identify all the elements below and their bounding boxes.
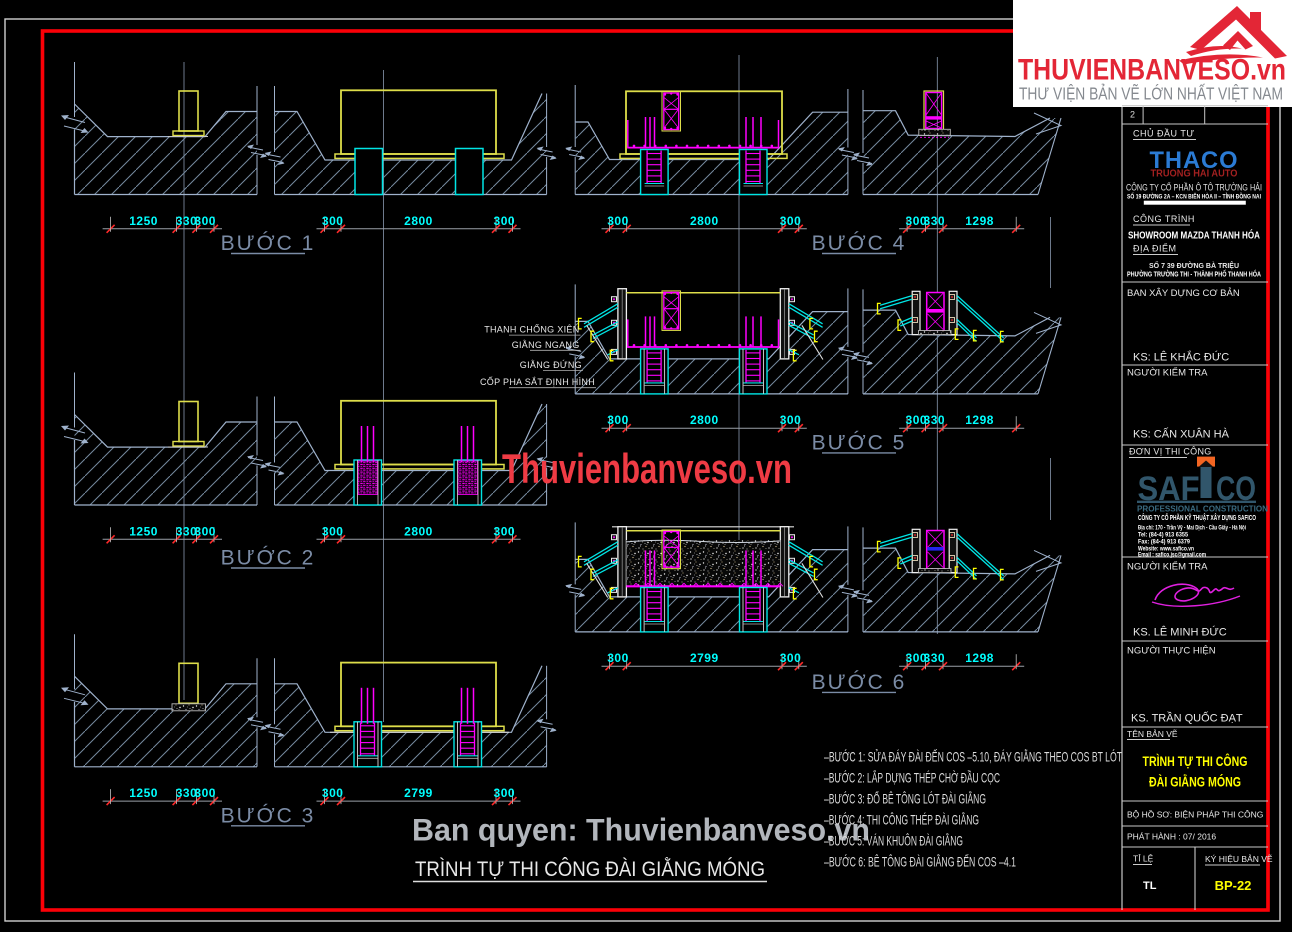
svg-text:ĐỊA ĐIỂM: ĐỊA ĐIỂM — [1133, 243, 1177, 254]
svg-text:TÊN BẢN VẼ: TÊN BẢN VẼ — [1127, 728, 1178, 739]
svg-text:Fax: (84-4) 913 6379: Fax: (84-4) 913 6379 — [1138, 539, 1190, 546]
svg-text:1250: 1250 — [129, 524, 158, 538]
svg-text:BP-22: BP-22 — [1215, 878, 1252, 893]
svg-text:GIẰNG NGANG: GIẰNG NGANG — [512, 340, 580, 350]
svg-text:CÔNG TRÌNH: CÔNG TRÌNH — [1133, 214, 1195, 224]
svg-text:1298: 1298 — [965, 214, 994, 228]
svg-text:NGƯỜI KIỂM TRA: NGƯỜI KIỂM TRA — [1127, 367, 1208, 379]
svg-text:–BƯỚC 1: SỬA ĐÁY ĐÀI ĐẾN COS –: –BƯỚC 1: SỬA ĐÁY ĐÀI ĐẾN COS –5.10, ĐÁY … — [824, 748, 1122, 765]
svg-text:2800: 2800 — [690, 214, 719, 228]
svg-text:BƯỚC 5: BƯỚC 5 — [812, 431, 907, 454]
svg-text:SHOWROOM MAZDA THANH HÓA: SHOWROOM MAZDA THANH HÓA — [1128, 229, 1260, 242]
svg-text:2800: 2800 — [404, 214, 433, 228]
svg-text:NGƯỜI THỰC HIỆN: NGƯỜI THỰC HIỆN — [1127, 646, 1216, 657]
svg-text:SỐ 7 39 ĐƯỜNG BÀ TRIỆU: SỐ 7 39 ĐƯỜNG BÀ TRIỆU — [1149, 260, 1239, 270]
svg-text:2: 2 — [1130, 110, 1135, 120]
svg-text:GIẰNG ĐỨNG: GIẰNG ĐỨNG — [520, 360, 582, 370]
svg-text:300: 300 — [194, 214, 216, 228]
svg-text:300: 300 — [780, 413, 802, 427]
svg-text:300: 300 — [607, 413, 629, 427]
svg-text:THANH CHỐNG XIÊN: THANH CHỐNG XIÊN — [484, 324, 579, 335]
svg-text:Thuvienbanveso.vn: Thuvienbanveso.vn — [502, 445, 792, 492]
svg-text:THƯ VIỆN BẢN VẼ LỚN NHẤT VIỆT: THƯ VIỆN BẢN VẼ LỚN NHẤT VIỆT NAM — [1019, 83, 1283, 104]
svg-text:BƯỚC 4: BƯỚC 4 — [812, 232, 907, 255]
svg-text:2799: 2799 — [690, 651, 719, 665]
svg-text:1298: 1298 — [965, 651, 994, 665]
svg-text:300: 300 — [607, 214, 629, 228]
svg-text:300: 300 — [780, 214, 802, 228]
svg-text:PHÁT HÀNH : 07/ 2016: PHÁT HÀNH : 07/ 2016 — [1127, 832, 1216, 842]
svg-text:PHƯỜNG TRƯỜNG THI - THÀNH PHỐ: PHƯỜNG TRƯỜNG THI - THÀNH PHỐ THANH HÓA — [1127, 269, 1261, 279]
svg-text:300: 300 — [194, 524, 216, 538]
svg-text:BAN XÂY DỰNG CƠ BẢN: BAN XÂY DỰNG CƠ BẢN — [1127, 287, 1240, 299]
svg-text:TRUONG HAI AUTO: TRUONG HAI AUTO — [1151, 168, 1238, 180]
svg-text:PROFESSIONAL CONSTRUCTION: PROFESSIONAL CONSTRUCTION — [1137, 504, 1268, 514]
svg-text:CÔNG TY CỔ PHẦN Ô TÔ TRƯỜNG HẢ: CÔNG TY CỔ PHẦN Ô TÔ TRƯỜNG HẢI — [1126, 182, 1262, 194]
svg-text:BƯỚC 6: BƯỚC 6 — [812, 671, 907, 694]
svg-text:1250: 1250 — [129, 786, 158, 800]
svg-text:Tel: (84-4) 913 6355: Tel: (84-4) 913 6355 — [1138, 532, 1188, 539]
svg-text:KS: LÊ KHẮC ĐỨC: KS: LÊ KHẮC ĐỨC — [1133, 351, 1229, 364]
svg-text:300: 300 — [322, 786, 344, 800]
svg-text:2800: 2800 — [404, 524, 433, 538]
svg-text:ĐÀI GIẰNG MÓNG: ĐÀI GIẰNG MÓNG — [1149, 775, 1241, 790]
svg-text:TRÌNH TỰ THI CÔNG: TRÌNH TỰ THI CÔNG — [1143, 754, 1248, 769]
svg-text:–BƯỚC 5: VÁN KHUÔN ĐÀI GIẰNG: –BƯỚC 5: VÁN KHUÔN ĐÀI GIẰNG — [824, 832, 963, 849]
svg-text:300: 300 — [780, 651, 802, 665]
svg-text:KS: CẤN XUÂN HÀ: KS: CẤN XUÂN HÀ — [1133, 428, 1230, 441]
svg-text:TL: TL — [1143, 880, 1157, 892]
svg-text:–BƯỚC 4: THI CÔNG THÉP ĐÀI GIẰ: –BƯỚC 4: THI CÔNG THÉP ĐÀI GIẰNG — [824, 811, 979, 828]
svg-text:300: 300 — [494, 214, 516, 228]
svg-text:300: 300 — [494, 786, 516, 800]
svg-text:THUVIENBANVESO.vn: THUVIENBANVESO.vn — [1018, 54, 1286, 87]
svg-text:1250: 1250 — [129, 214, 158, 228]
svg-text:Địa chỉ: 170 - Trần Vỹ - Mai D: Địa chỉ: 170 - Trần Vỹ - Mai Dịch - Cầu … — [1138, 523, 1246, 532]
svg-text:BỘ HỒ SƠ: BIỆN PHÁP THI CÔNG: BỘ HỒ SƠ: BIỆN PHÁP THI CÔNG — [1127, 809, 1263, 820]
svg-text:KS. TRẦN QUỐC ĐẠT: KS. TRẦN QUỐC ĐẠT — [1131, 711, 1243, 725]
svg-text:300: 300 — [322, 214, 344, 228]
svg-text:ĐƠN VỊ THI CÔNG: ĐƠN VỊ THI CÔNG — [1129, 447, 1212, 457]
svg-text:Ban quyen: Thuvienbanveso.vn: Ban quyen: Thuvienbanveso.vn — [412, 812, 870, 848]
svg-text:CỐP PHA SẮT ĐỊNH HÌNH: CỐP PHA SẮT ĐỊNH HÌNH — [480, 376, 595, 387]
svg-text:300: 300 — [607, 651, 629, 665]
svg-text:BƯỚC 3: BƯỚC 3 — [221, 804, 316, 827]
svg-text:1298: 1298 — [965, 413, 994, 427]
svg-text:2799: 2799 — [404, 786, 433, 800]
svg-text:330: 330 — [924, 651, 946, 665]
svg-text:KS. LÊ MINH ĐỨC: KS. LÊ MINH ĐỨC — [1133, 626, 1227, 639]
svg-text:–BƯỚC 3: ĐỔ BÊ TÔNG LÓT ĐÀI GI: –BƯỚC 3: ĐỔ BÊ TÔNG LÓT ĐÀI GIẰNG — [824, 790, 986, 807]
svg-text:2800: 2800 — [690, 413, 719, 427]
svg-text:BƯỚC 2: BƯỚC 2 — [221, 547, 316, 570]
svg-text:330: 330 — [924, 214, 946, 228]
svg-text:330: 330 — [924, 413, 946, 427]
svg-text:Email : safico.jsc@gmail.com: Email : safico.jsc@gmail.com — [1138, 552, 1206, 559]
svg-text:KÝ HIỆU BẢN VẼ: KÝ HIỆU BẢN VẼ — [1205, 853, 1273, 864]
svg-text:–BƯỚC 2: LẮP DỰNG THÉP CHỜ ĐẦU: –BƯỚC 2: LẮP DỰNG THÉP CHỜ ĐẦU CỌC — [824, 769, 1000, 786]
svg-text:TỈ LỆ: TỈ LỆ — [1133, 853, 1154, 864]
svg-text:300: 300 — [194, 786, 216, 800]
svg-text:300: 300 — [494, 524, 516, 538]
svg-text:BƯỚC 1: BƯỚC 1 — [221, 232, 316, 255]
svg-text:CHỦ ĐẦU TƯ: CHỦ ĐẦU TƯ — [1133, 128, 1195, 139]
svg-text:300: 300 — [322, 524, 344, 538]
svg-text:TRÌNH TỰ THI CÔNG ĐÀI GIẰNG MÓ: TRÌNH TỰ THI CÔNG ĐÀI GIẰNG MÓNG — [415, 857, 765, 881]
svg-text:NGƯỜI KIỂM TRA: NGƯỜI KIỂM TRA — [1127, 561, 1208, 573]
svg-text:–BƯỚC 6: BÊ TÔNG ĐÀI GIẰNG ĐẾN: –BƯỚC 6: BÊ TÔNG ĐÀI GIẰNG ĐẾN COS –4.1 — [824, 853, 1016, 870]
